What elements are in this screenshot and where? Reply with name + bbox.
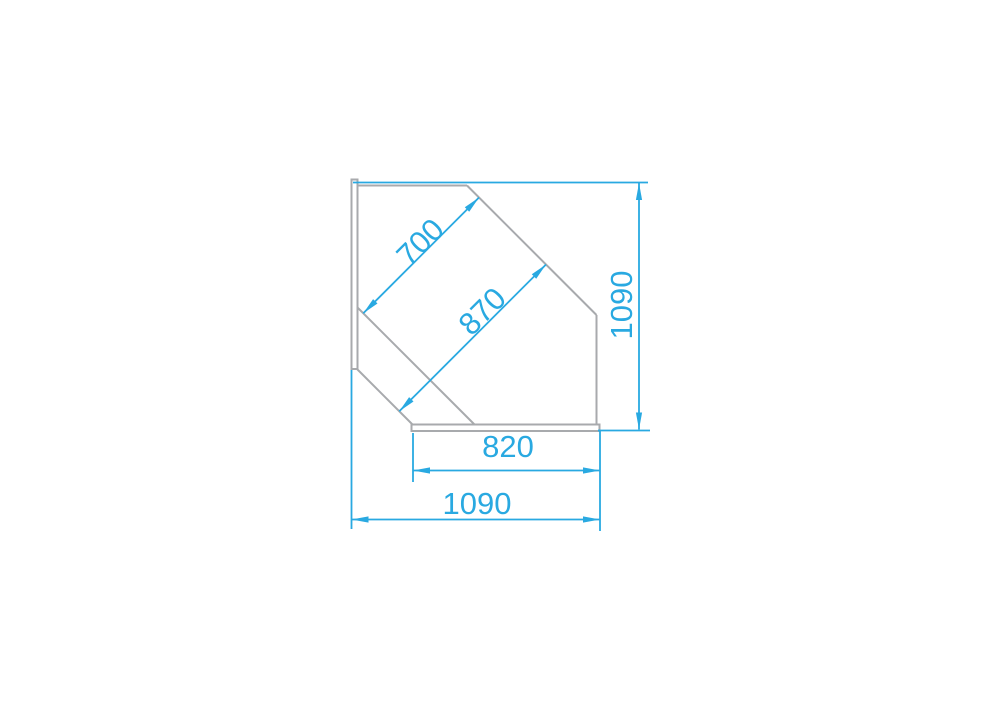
arrowhead-icon xyxy=(583,516,600,522)
technical-drawing-canvas: 700 870 1090 820 xyxy=(0,0,1000,714)
dimension-870: 870 xyxy=(399,265,546,412)
arrowhead-icon xyxy=(636,413,642,430)
arrowhead-icon xyxy=(583,467,600,473)
arrowhead-icon xyxy=(352,516,369,522)
front-diagonal-inner xyxy=(358,308,475,425)
arrowhead-icon xyxy=(636,183,642,200)
technical-drawing-page: 700 870 1090 820 xyxy=(0,0,1000,714)
left-panel xyxy=(352,180,358,370)
dim-870-label: 870 xyxy=(452,281,513,342)
dimension-700: 700 xyxy=(363,198,479,314)
dim-820-label: 820 xyxy=(482,429,534,464)
dimension-bottom-1090: 1090 xyxy=(352,370,601,529)
dim-right-1090-label: 1090 xyxy=(604,271,639,340)
dim-bottom-1090-label: 1090 xyxy=(443,486,512,521)
arrowhead-icon xyxy=(413,467,430,473)
front-diagonal-outer xyxy=(357,369,413,425)
dim-700-label: 700 xyxy=(390,212,451,273)
